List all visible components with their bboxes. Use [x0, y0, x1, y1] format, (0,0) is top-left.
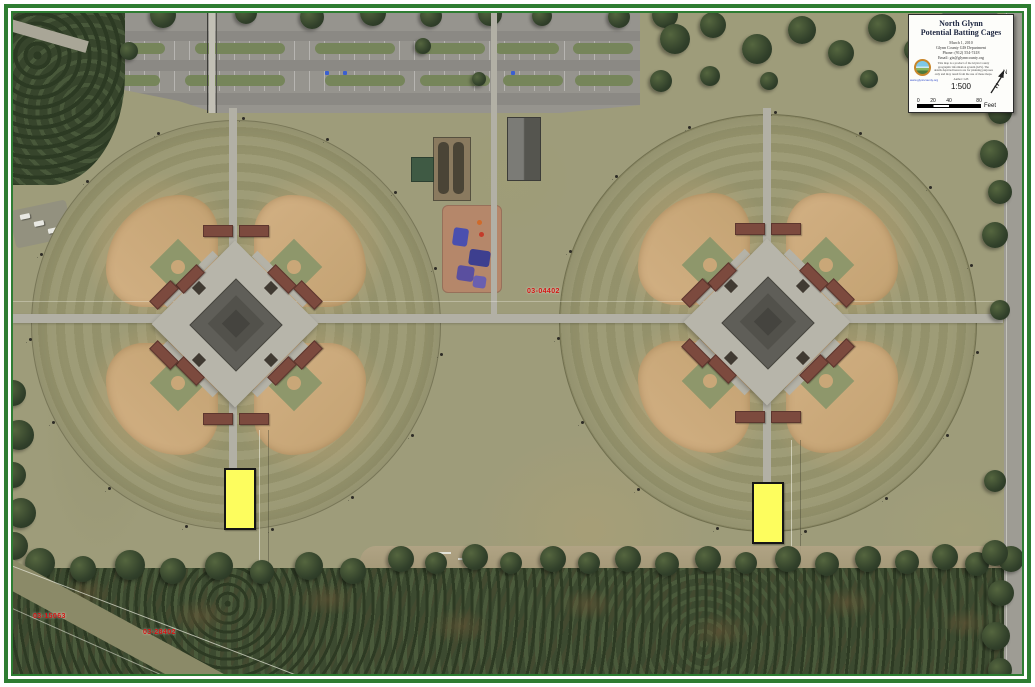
forest-brown-patch [430, 608, 490, 644]
tree-blob [990, 300, 1010, 320]
light-pole [108, 487, 111, 490]
tree-blob [868, 14, 896, 42]
bleacher-roof [735, 223, 765, 235]
tree-blob [700, 12, 726, 38]
parking-island [503, 75, 563, 86]
tree-blob [660, 24, 690, 54]
title-block: North Glynn Potential Batting Cages Marc… [908, 14, 1014, 113]
forest-brown-patch [690, 613, 750, 649]
bleacher-roof [771, 223, 801, 235]
parcel-id-label: 03-04402 [527, 288, 560, 295]
tree-blob [608, 6, 630, 28]
walkway-fence [207, 13, 208, 113]
map-title-line1: North Glynn [909, 19, 1013, 28]
forest-brown-patch [300, 583, 355, 616]
parking-island [573, 43, 633, 54]
light-pole [557, 337, 560, 340]
tree-blob [788, 16, 816, 44]
tree-blob [235, 2, 257, 24]
map-title-line2: Potential Batting Cages [909, 28, 1013, 37]
play-equipment [468, 249, 491, 268]
light-pole [929, 186, 932, 189]
tree-blob [855, 546, 881, 572]
light-pole [885, 497, 888, 500]
tree-blob [532, 6, 552, 26]
tree-blob [160, 558, 186, 584]
storage-shed [411, 157, 434, 182]
parking-island [185, 75, 285, 86]
bleacher-roof [735, 411, 765, 423]
tunnel-lane [453, 142, 464, 194]
tree-blob [655, 552, 679, 576]
main-walkway-vertical-center [491, 13, 497, 320]
tree-blob [988, 580, 1014, 606]
light-pole [976, 351, 979, 354]
play-equipment [472, 275, 487, 289]
map-disclaimer: This map is a product of the Glynn Count… [934, 62, 993, 76]
play-equipment [452, 227, 469, 247]
tree-blob [932, 544, 958, 570]
bleacher-roof [203, 413, 233, 425]
proposed-cage-west [224, 468, 256, 530]
tree-blob [982, 540, 1008, 566]
light-pole [859, 132, 862, 135]
parking-island [315, 43, 395, 54]
tree-blob [700, 66, 720, 86]
forest-brown-patch [560, 588, 615, 621]
tree-blob [388, 546, 414, 572]
tree-blob [295, 552, 323, 580]
handicap-marking [511, 71, 515, 75]
tree-blob [982, 622, 1010, 650]
tree-blob [150, 2, 176, 28]
tree-blob [895, 550, 919, 574]
bleacher-roof [771, 411, 801, 423]
tree-blob [980, 140, 1008, 168]
tree-blob [0, 380, 26, 406]
light-pole [581, 421, 584, 424]
aerial-map: 03-0440203-1506303-28402 [0, 0, 1035, 687]
county-website: www.glynncounty.org [910, 79, 936, 83]
light-pole [271, 528, 274, 531]
central-plaza-west [125, 214, 345, 434]
tree-blob [300, 5, 324, 29]
tunnel-lane [438, 142, 449, 194]
tree-blob [340, 558, 366, 584]
scale-unit: Feet [984, 103, 996, 109]
light-pole [326, 138, 329, 141]
tree-blob [4, 420, 34, 450]
light-pole [569, 250, 572, 253]
tree-blob [650, 70, 672, 92]
light-pole [411, 434, 414, 437]
tree-blob [615, 546, 641, 572]
parcel-id-label: 03-15063 [33, 613, 66, 620]
parking-island [325, 75, 405, 86]
light-pole [716, 527, 719, 530]
tree-blob [860, 70, 878, 88]
tree-blob [478, 2, 502, 26]
fence-line [259, 430, 260, 565]
bleacher-roof [239, 413, 269, 425]
light-pole [970, 264, 973, 267]
tree-blob [578, 552, 600, 574]
play-equipment [456, 265, 475, 282]
tree-blob [0, 462, 26, 488]
proposed-cage-east [752, 482, 784, 544]
tree-blob [988, 180, 1012, 204]
central-plaza-east [657, 212, 877, 432]
play-equipment [477, 220, 482, 225]
north-label: N [1003, 70, 1007, 76]
tree-blob [828, 40, 854, 66]
maintenance-building [507, 117, 541, 181]
light-pole [804, 530, 807, 533]
tree-blob [70, 556, 96, 582]
tree-blob [742, 34, 772, 64]
tree-blob [760, 72, 778, 90]
light-pole [434, 267, 437, 270]
tree-blob [500, 552, 522, 574]
handicap-marking [325, 71, 329, 75]
tree-blob [6, 498, 36, 528]
tree-blob [360, 0, 386, 26]
map-sheet: 03-0440203-1506303-28402 North Glynn Pot… [0, 0, 1035, 687]
forest-brown-patch [820, 586, 875, 619]
tree-blob [120, 42, 138, 60]
scale-bar-group: 0 20 40 80 Feet [917, 99, 1005, 111]
tree-blob [695, 546, 721, 572]
tree-blob [540, 546, 566, 572]
tree-blob [472, 72, 486, 86]
tree-blob [735, 552, 757, 574]
bleacher-roof [203, 225, 233, 237]
parking-island [575, 75, 633, 86]
tree-blob [815, 552, 839, 576]
county-seal-icon [914, 59, 931, 76]
light-pole [440, 353, 443, 356]
tree-blob [205, 552, 233, 580]
tree-blob [984, 470, 1006, 492]
tree-blob [250, 560, 274, 584]
scale-bar [917, 104, 981, 108]
light-pole [946, 434, 949, 437]
parking-walkway [209, 13, 215, 113]
parking-island [495, 43, 559, 54]
parcel-id-label: 03-28402 [143, 629, 176, 636]
tree-blob [425, 552, 447, 574]
walkway-fence [216, 13, 217, 113]
tree-blob [415, 38, 431, 54]
play-equipment [479, 232, 484, 237]
fence-line [268, 430, 269, 565]
tree-blob [462, 544, 488, 570]
tree-blob [420, 5, 442, 27]
tree-blob [982, 222, 1008, 248]
tree-blob [115, 550, 145, 580]
tree-blob [775, 546, 801, 572]
bleacher-roof [239, 225, 269, 237]
light-pole [351, 496, 354, 499]
handicap-marking [343, 71, 347, 75]
light-pole [185, 525, 188, 528]
light-pole [394, 191, 397, 194]
north-arrow-icon: N [987, 67, 1009, 102]
tree-blob [988, 658, 1012, 682]
